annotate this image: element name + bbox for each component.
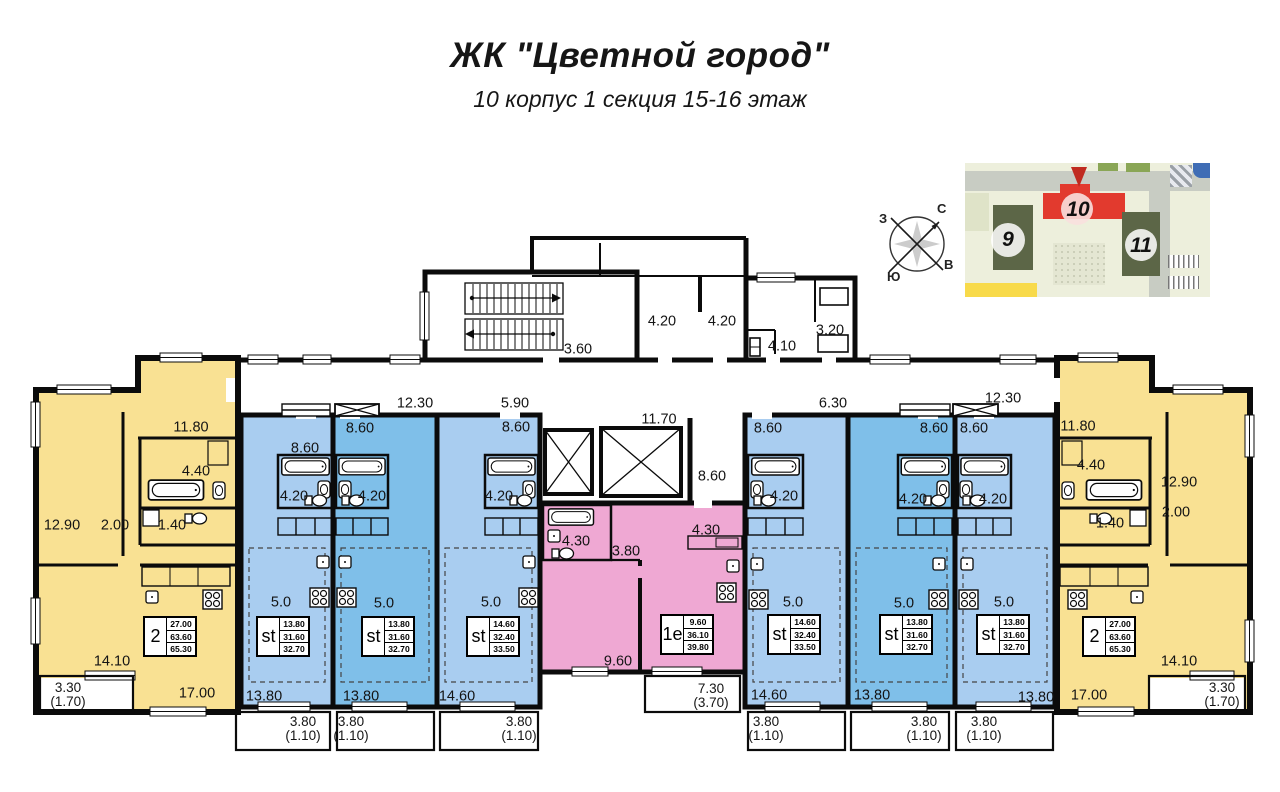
dimension-label: 11.70 (641, 412, 676, 427)
unit-areas: 14.60 32.40 33.50 (490, 618, 518, 655)
dimension-label: 8.60 (920, 421, 948, 436)
unit-area-net: 31.60 (903, 628, 931, 641)
location-pin-icon (1071, 167, 1087, 187)
dimension-label: 5.0 (481, 595, 501, 610)
parking (1168, 276, 1199, 289)
unit-area-living: 13.80 (903, 616, 931, 628)
dimension-label: 8.60 (754, 421, 782, 436)
dimension-label: 5.90 (501, 396, 529, 411)
dimension-label: 3.80(1.10) (906, 715, 941, 743)
pond (1193, 163, 1210, 178)
dimension-label: 4.30 (692, 523, 720, 538)
dimension-label: 4.20 (648, 314, 676, 329)
dimension-label: 3.30(1.70) (1204, 681, 1239, 709)
unit-areas: 13.80 31.60 32.70 (903, 616, 931, 653)
dimension-label: 2.00 (101, 518, 129, 533)
building-10-label: 10 (1066, 198, 1089, 222)
compass-east: В (944, 257, 953, 272)
unit-area-total: 65.30 (167, 642, 195, 655)
dimension-label: 4.20 (899, 492, 927, 507)
unit-area-net: 31.60 (1000, 628, 1028, 641)
dimension-label: 5.0 (783, 595, 803, 610)
dimension-label: 5.0 (894, 596, 914, 611)
unit-areas: 13.80 31.60 32.70 (1000, 616, 1028, 653)
unit-area-net: 32.40 (791, 628, 819, 641)
compass-west: З (879, 211, 887, 226)
unit-area-living: 14.60 (791, 616, 819, 628)
unit-areas: 27.00 63.60 65.30 (1106, 618, 1134, 655)
dimension-label: 3.20 (816, 323, 844, 338)
unit-area-net: 36.10 (684, 628, 712, 641)
dimension-label: 4.40 (182, 464, 210, 479)
unit-info-box: st 13.80 31.60 32.70 (361, 616, 415, 657)
unit-areas: 9.60 36.10 39.80 (684, 616, 712, 653)
unit-area-total: 39.80 (684, 640, 712, 653)
dimension-label: 4.20 (979, 492, 1007, 507)
unit-area-net: 31.60 (385, 630, 413, 643)
dimension-label: 13.80 (343, 689, 379, 704)
unit-info-box: 1е 9.60 36.10 39.80 (660, 614, 714, 655)
unit-type-label: st (363, 618, 385, 655)
unit-area-total: 65.30 (1106, 642, 1134, 655)
unit-type-label: 2 (1084, 618, 1106, 655)
unit-area-living: 13.80 (1000, 616, 1028, 628)
dimension-label: 5.0 (271, 595, 291, 610)
dimension-label: 3.60 (564, 342, 592, 357)
unit-area-living: 27.00 (167, 618, 195, 630)
unit-areas: 13.80 31.60 32.70 (385, 618, 413, 655)
green-patch (1126, 163, 1150, 172)
compass-rose: С З В Ю (871, 197, 963, 289)
dimension-label: 8.60 (502, 420, 530, 435)
unit-area-living: 27.00 (1106, 618, 1134, 630)
building-11-label: 11 (1130, 234, 1152, 258)
dimension-label: 17.00 (179, 686, 215, 701)
unit-info-box: 2 27.00 63.60 65.30 (1082, 616, 1136, 657)
dimension-label: 5.0 (994, 595, 1014, 610)
unit-area-total: 33.50 (791, 640, 819, 653)
unit-areas: 27.00 63.60 65.30 (167, 618, 195, 655)
unit-areas: 13.80 31.60 32.70 (280, 618, 308, 655)
courtyard (1053, 243, 1105, 285)
dimension-label: 5.0 (374, 596, 394, 611)
unit-area-total: 32.70 (1000, 640, 1028, 653)
parking (1168, 255, 1199, 268)
building-9-label: 9 (1002, 228, 1014, 252)
dimension-label: 3.80(1.10) (966, 715, 1001, 743)
dimension-label: 1.40 (1096, 516, 1124, 531)
yellow-zone (965, 283, 1037, 297)
staircase (465, 283, 563, 350)
unit-type-label: st (881, 616, 903, 653)
dimension-label: 8.60 (698, 469, 726, 484)
dimension-label: 8.60 (960, 421, 988, 436)
unit-type-label: 2 (145, 618, 167, 655)
dimension-label: 17.00 (1071, 688, 1107, 703)
dimension-label: 3.80(1.10) (501, 715, 536, 743)
dimension-label: 4.10 (768, 339, 796, 354)
dimension-label: 4.20 (708, 314, 736, 329)
dimension-label: 11.80 (173, 420, 208, 435)
unit-area-total: 32.70 (903, 640, 931, 653)
unit-areas: 14.60 32.40 33.50 (791, 616, 819, 653)
unit-info-box: st 14.60 32.40 33.50 (466, 616, 520, 657)
unit-area-net: 31.60 (280, 630, 308, 643)
elevator-shafts (545, 428, 681, 496)
unit-area-net: 32.40 (490, 630, 518, 643)
dimension-label: 13.80 (854, 688, 890, 703)
unit-area-living: 13.80 (280, 618, 308, 630)
green-patch (965, 193, 989, 231)
unit-area-living: 9.60 (684, 616, 712, 628)
dimension-label: 13.80 (246, 689, 282, 704)
dimension-label: 14.60 (751, 688, 787, 703)
unit-area-living: 14.60 (490, 618, 518, 630)
dimension-label: 4.40 (1077, 458, 1105, 473)
dimension-label: 11.80 (1060, 419, 1095, 434)
dimension-label: 8.60 (346, 421, 374, 436)
dimension-label: 4.20 (485, 489, 513, 504)
dimension-label: 2.00 (1162, 505, 1190, 520)
dimension-label: 4.20 (770, 489, 798, 504)
site-minimap: 9 10 11 (965, 163, 1210, 297)
unit-area-total: 32.70 (385, 642, 413, 655)
dimension-label: 14.60 (439, 689, 475, 704)
unit-info-box: 2 27.00 63.60 65.30 (143, 616, 197, 657)
dimension-label: 1.40 (158, 518, 186, 533)
dimension-label: 9.60 (604, 654, 632, 669)
floorplan-page: ЖК "Цветной город" 10 корпус 1 секция 15… (0, 0, 1280, 792)
unit-type-label: 1е (662, 616, 684, 653)
dimension-label: 14.10 (1161, 654, 1197, 669)
unit-info-box: st 13.80 31.60 32.70 (976, 614, 1030, 655)
dimension-label: 4.20 (358, 489, 386, 504)
dimension-label: 4.30 (562, 534, 590, 549)
unit-type-label: st (978, 616, 1000, 653)
unit-info-box: st 13.80 31.60 32.70 (879, 614, 933, 655)
dimension-label: 8.60 (291, 441, 319, 456)
unit-area-total: 33.50 (490, 642, 518, 655)
unit-info-box: st 13.80 31.60 32.70 (256, 616, 310, 657)
dimension-label: 4.20 (280, 489, 308, 504)
unit-area-total: 32.70 (280, 642, 308, 655)
construction-area (1170, 165, 1192, 187)
dimension-label: 7.30(3.70) (693, 682, 728, 710)
dimension-label: 14.10 (94, 654, 130, 669)
dimension-label: 3.80(1.10) (333, 715, 368, 743)
unit-type-label: st (258, 618, 280, 655)
dimension-label: 12.90 (44, 518, 80, 533)
dimension-label: 3.80(1.10) (748, 715, 783, 743)
unit-area-net: 63.60 (1106, 630, 1134, 643)
dimension-label: 13.80 (1018, 690, 1054, 705)
dimension-label: 3.80 (612, 544, 640, 559)
unit-area-living: 13.80 (385, 618, 413, 630)
dimension-label: 3.30(1.70) (50, 681, 85, 709)
dimension-label: 3.80(1.10) (285, 715, 320, 743)
unit-info-box: st 14.60 32.40 33.50 (767, 614, 821, 655)
compass-south: Ю (887, 269, 900, 284)
green-patch (1098, 163, 1118, 171)
compass-north: С (937, 201, 946, 216)
unit-type-label: st (468, 618, 490, 655)
dimension-label: 12.30 (985, 391, 1021, 406)
unit-type-label: st (769, 616, 791, 653)
dimension-label: 12.30 (397, 396, 433, 411)
unit-area-net: 63.60 (167, 630, 195, 643)
dimension-label: 12.90 (1161, 475, 1197, 490)
dimension-label: 6.30 (819, 396, 847, 411)
floor-plan-drawing (0, 0, 1280, 792)
